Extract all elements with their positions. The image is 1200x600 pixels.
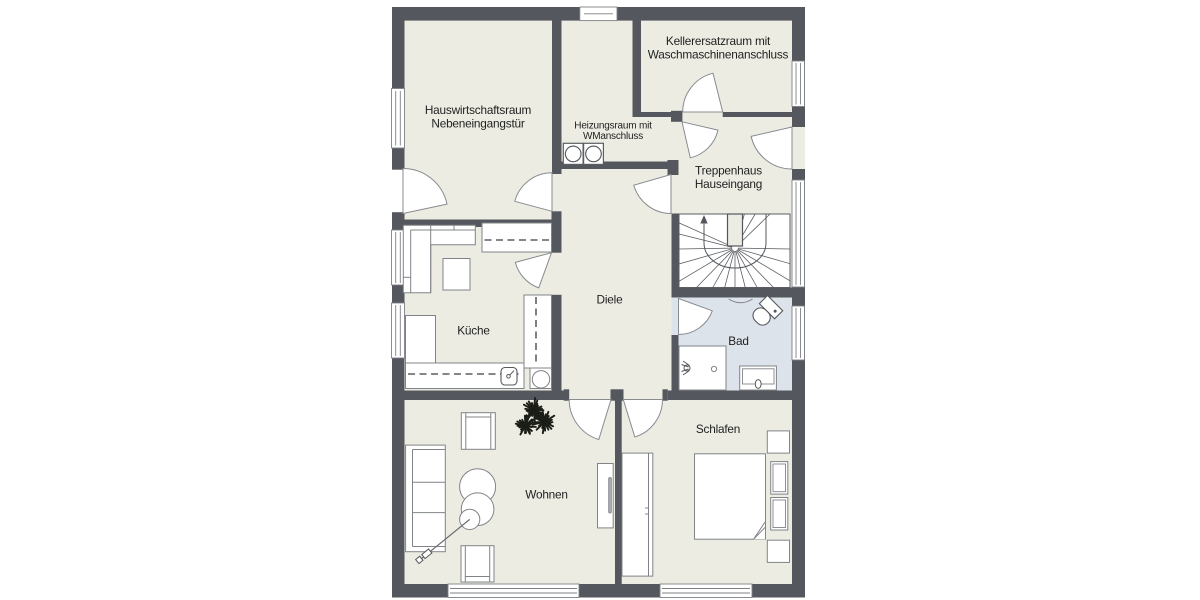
svg-text:Hauseingang: Hauseingang [695,177,762,191]
svg-text:Nebeneingangstür: Nebeneingangstür [431,116,524,130]
svg-text:Diele: Diele [597,293,624,307]
svg-text:Treppenhaus: Treppenhaus [695,164,762,178]
svg-text:Heizungsraum mit: Heizungsraum mit [574,121,652,132]
svg-text:Waschmaschinenanschluss: Waschmaschinenanschluss [648,47,789,61]
svg-text:Wohnen: Wohnen [525,488,568,502]
svg-text:Küche: Küche [457,324,490,338]
svg-text:Schlafen: Schlafen [696,422,740,436]
svg-text:Hauswirtschaftsraum: Hauswirtschaftsraum [425,103,532,117]
svg-text:Kellerersatzraum mit: Kellerersatzraum mit [666,34,771,48]
svg-text:Bad: Bad [728,334,748,348]
svg-text:WManschluss: WManschluss [583,131,643,142]
